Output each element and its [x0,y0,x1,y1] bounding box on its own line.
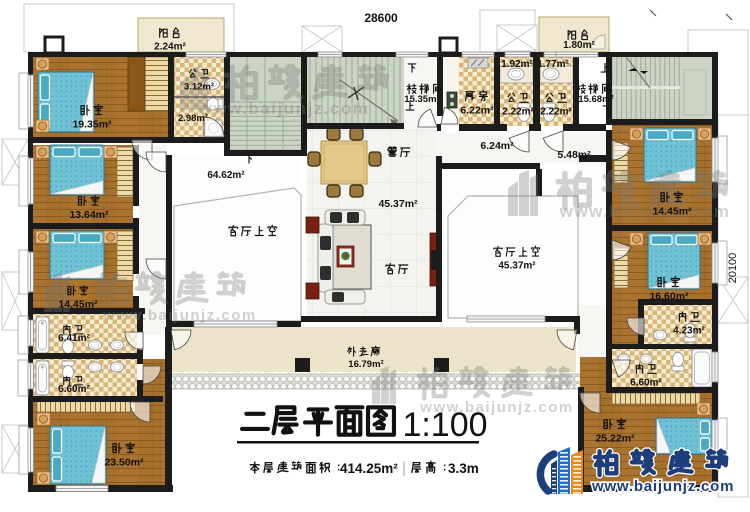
svg-text:6.60m²: 6.60m² [630,378,662,389]
svg-text:14.45m²: 14.45m² [58,299,98,311]
svg-text:6.24m²: 6.24m² [480,140,514,152]
svg-text:1.92m²: 1.92m² [501,59,533,70]
svg-text:64.62m²: 64.62m² [207,170,245,181]
svg-text:20100: 20100 [727,253,739,284]
svg-text:3.3m: 3.3m [448,461,479,476]
svg-text:23.50m²: 23.50m² [104,457,144,469]
svg-text:16.79m²: 16.79m² [348,359,383,370]
svg-text:45.37m²: 45.37m² [378,198,418,210]
svg-text:15.68m²: 15.68m² [578,94,613,105]
svg-text:6.60m²: 6.60m² [58,384,90,395]
svg-text:2.22m²: 2.22m² [540,107,572,118]
svg-text:1:100: 1:100 [402,406,487,444]
svg-text:3.12m²: 3.12m² [184,82,214,93]
svg-text:13.64m²: 13.64m² [69,209,109,221]
svg-text:414.25m²: 414.25m² [340,461,398,476]
svg-text:28600: 28600 [364,11,398,25]
svg-text:www.baijunjz.com: www.baijunjz.com [559,202,731,221]
svg-text:4.23m²: 4.23m² [673,326,705,337]
svg-text:16.60m²: 16.60m² [649,291,689,303]
svg-text:25.22m²: 25.22m² [595,433,635,445]
svg-text:1.80m²: 1.80m² [563,40,595,51]
svg-text:6.41m²: 6.41m² [58,333,90,344]
svg-text:5.48m²: 5.48m² [557,149,591,161]
svg-text:2.22m²: 2.22m² [502,107,534,118]
svg-text:1.77m²: 1.77m² [537,59,569,70]
svg-text:19.35m²: 19.35m² [72,119,112,131]
svg-text:www.baijunjz.com: www.baijunjz.com [102,307,256,324]
svg-text:2.24m²: 2.24m² [154,42,186,53]
svg-text:2.98m²: 2.98m² [178,113,208,124]
svg-text:45.37m²: 45.37m² [498,261,536,272]
svg-text:www.baijunjz.com: www.baijunjz.com [198,99,370,118]
svg-text:14.45m²: 14.45m² [652,206,692,218]
svg-text:www.baijunjz.com: www.baijunjz.com [591,478,734,495]
svg-text:6.22m²: 6.22m² [460,105,494,117]
